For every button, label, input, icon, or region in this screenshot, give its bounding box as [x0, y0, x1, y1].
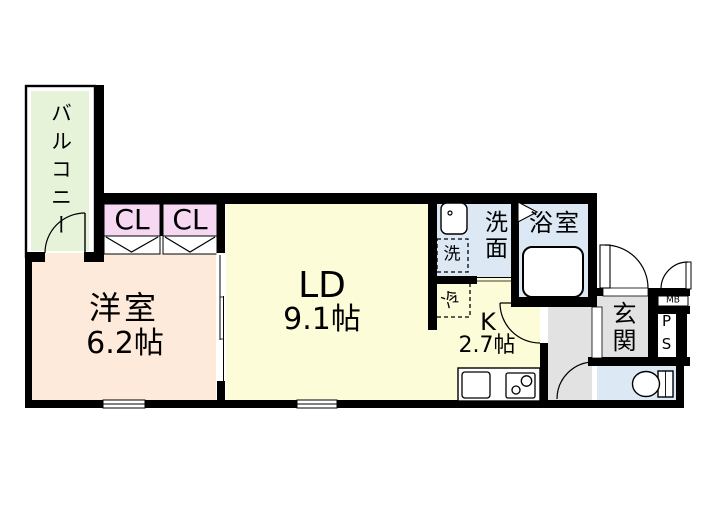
wall-segment: [428, 193, 437, 330]
balcony-label: バルコニー: [50, 102, 71, 242]
wall-segment: [160, 204, 163, 236]
wall-segment: [217, 198, 225, 253]
wall-segment: [511, 297, 597, 307]
wall-segment: [540, 343, 548, 408]
bathroom-label: 浴室: [529, 211, 581, 235]
floor-plan-drawing: [0, 0, 720, 512]
closet-right-door-strip: [163, 236, 217, 254]
kitchen-label: K: [480, 310, 496, 334]
wall-segment: [540, 297, 548, 306]
pipe-space-label: PS: [659, 312, 674, 358]
floor-plan: バルコニー CL CL 洋室 6.2帖 LD 9.1帖 K 2.7帖 洗面 浴室…: [0, 0, 720, 512]
window-west-room: [103, 400, 145, 408]
western-room-label: 洋室: [89, 292, 159, 324]
entrance-threshold: [603, 288, 648, 296]
washing-machine-label: 洗: [444, 247, 461, 264]
closet-right-label: CL: [172, 206, 207, 234]
closet-left-label: CL: [114, 206, 149, 234]
sliding-door-track: [217, 253, 226, 381]
wall-segment: [648, 296, 658, 365]
wall-segment: [588, 357, 690, 366]
kitchen-counter: [458, 368, 540, 401]
entrance-step: [592, 307, 602, 358]
bathtub-icon: [523, 247, 583, 297]
stove-icon: [506, 373, 535, 398]
living-dining-size: 9.1帖: [283, 305, 361, 335]
wall-segment: [95, 85, 104, 262]
wall-segment: [676, 306, 687, 365]
wall-segment: [588, 193, 597, 307]
wall-segment: [217, 381, 225, 408]
entrance-door: [600, 245, 648, 288]
western-room-size: 6.2帖: [86, 329, 164, 359]
kitchen-size: 2.7帖: [459, 335, 516, 357]
wall-segment: [676, 366, 684, 408]
entrance-label: 玄関: [610, 301, 634, 355]
meter-box-label: MB: [666, 297, 680, 306]
wall-segment: [84, 252, 104, 262]
toilet-icon: [633, 371, 674, 397]
window-living: [297, 400, 337, 408]
wall-segment: [25, 252, 32, 408]
hallway-floor: [548, 307, 592, 400]
meter-box-door: [661, 262, 691, 289]
washroom-label: 洗面: [482, 210, 505, 262]
living-dining-label: LD: [298, 268, 346, 304]
washbasin-icon: [441, 203, 467, 234]
kitchen-sink-icon: [462, 372, 490, 398]
